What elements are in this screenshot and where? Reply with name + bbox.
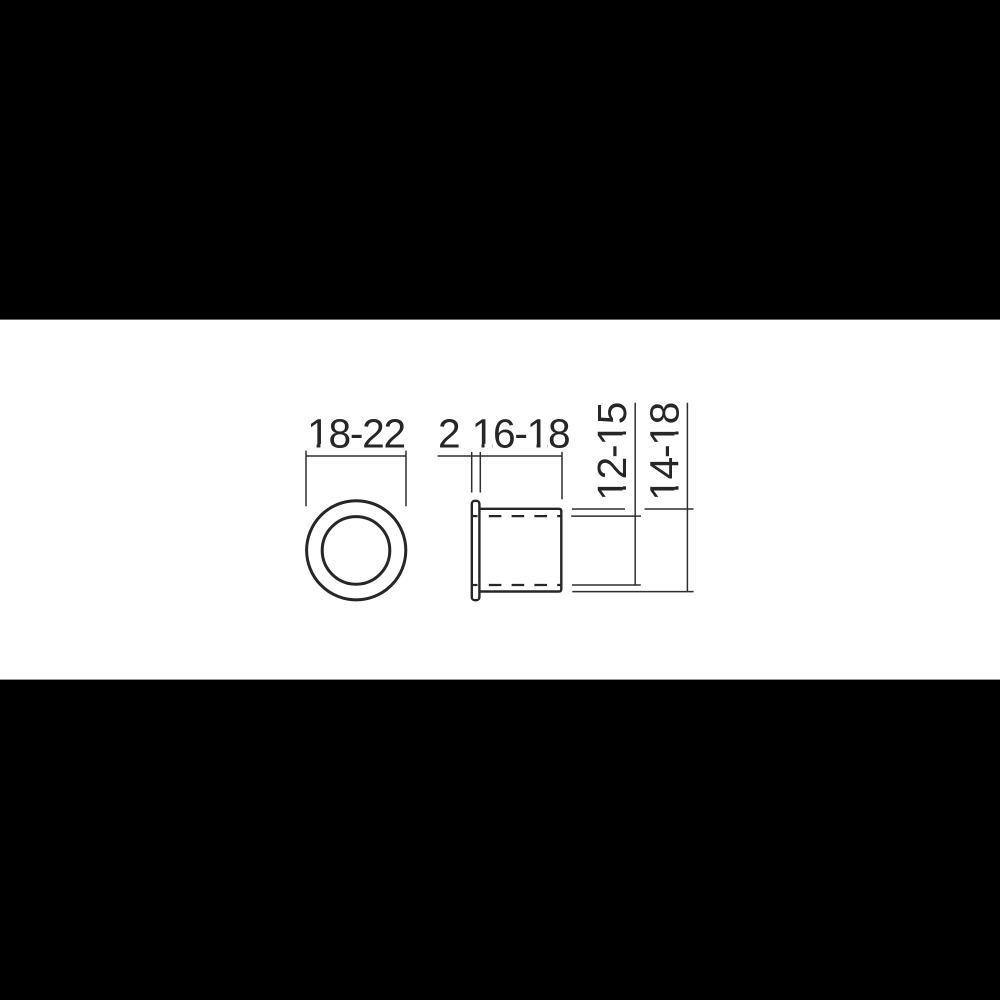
svg-text:12-15: 12-15 [589, 403, 635, 501]
svg-text:16-18: 16-18 [472, 411, 570, 457]
svg-text:18-22: 18-22 [307, 411, 405, 457]
svg-text:2: 2 [438, 411, 459, 457]
svg-text:14-18: 14-18 [642, 403, 688, 501]
